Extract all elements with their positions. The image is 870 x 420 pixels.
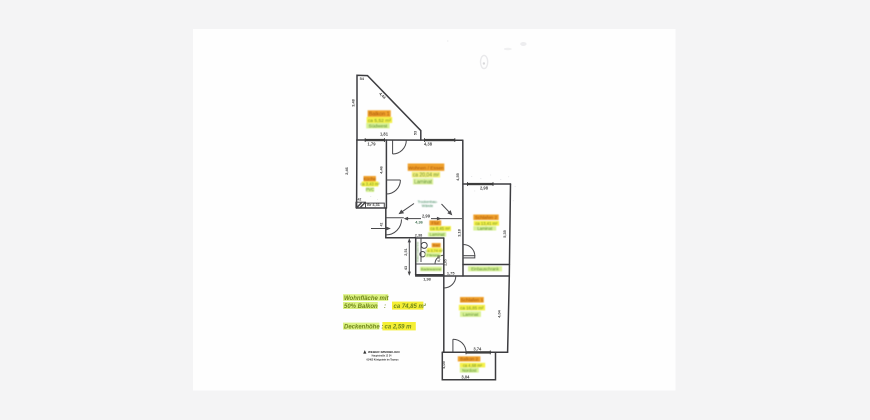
- svg-text:Laminat: Laminat: [430, 232, 446, 237]
- svg-text:Wohnen / Essen: Wohnen / Essen: [408, 165, 444, 171]
- svg-text:ca 74,85 m²: ca 74,85 m²: [394, 303, 427, 310]
- svg-text:42: 42: [358, 197, 362, 201]
- svg-text:4,04: 4,04: [496, 309, 501, 317]
- svg-text:3,74: 3,74: [473, 347, 482, 352]
- svg-text:ca 2,59 m: ca 2,59 m: [385, 325, 413, 331]
- svg-text:Balkon 1: Balkon 1: [369, 112, 390, 118]
- svg-text:43: 43: [404, 266, 408, 270]
- svg-text:61462 Königstein im Taunus: 61462 Königstein im Taunus: [366, 359, 399, 362]
- svg-text:Flur: Flur: [432, 221, 440, 226]
- svg-text:50% Balkon: 50% Balkon: [344, 304, 378, 310]
- svg-text:Schlafen 1: Schlafen 1: [461, 298, 484, 304]
- svg-text:2,46: 2,46: [344, 166, 349, 174]
- svg-text:2,51: 2,51: [404, 248, 408, 255]
- svg-text::: :: [384, 304, 386, 310]
- svg-text:Br 4,31: Br 4,31: [367, 203, 380, 207]
- svg-text:Bad: Bad: [433, 243, 440, 248]
- svg-text:Balkon 2: Balkon 2: [460, 357, 478, 362]
- svg-text:2,99: 2,99: [422, 214, 431, 219]
- svg-text:Laminat: Laminat: [414, 179, 432, 185]
- svg-text:Badewanne: Badewanne: [421, 267, 442, 272]
- svg-text:2,38: 2,38: [415, 234, 422, 238]
- svg-text:42: 42: [379, 223, 383, 227]
- svg-text:3,18: 3,18: [456, 228, 461, 236]
- svg-text:1,98: 1,98: [423, 277, 431, 282]
- svg-text:5,35: 5,35: [502, 229, 507, 237]
- svg-text:2,05: 2,05: [443, 259, 447, 266]
- svg-text:ca 3,43 m²: ca 3,43 m²: [360, 182, 380, 187]
- svg-text:4,46: 4,46: [379, 165, 384, 173]
- svg-text:Laminat: Laminat: [463, 312, 479, 317]
- svg-text:Wände: Wände: [422, 204, 433, 208]
- svg-text:1,81: 1,81: [380, 131, 389, 136]
- svg-text:Wohnfläche mit: Wohnfläche mit: [344, 296, 390, 302]
- svg-text:4,38: 4,38: [424, 142, 433, 147]
- svg-text:Deckenhöhe :: Deckenhöhe :: [344, 325, 383, 331]
- svg-text:0,45: 0,45: [437, 255, 441, 262]
- svg-text:Nordost: Nordost: [462, 368, 477, 373]
- svg-text:ca 16,85 m²: ca 16,85 m²: [460, 305, 484, 310]
- svg-text:Schlafen 2: Schlafen 2: [475, 215, 498, 220]
- svg-text:1,79: 1,79: [368, 142, 377, 147]
- svg-text:Waschmaschine: Waschmaschine: [415, 241, 419, 262]
- svg-text:ca 8,45 m²: ca 8,45 m²: [430, 226, 450, 231]
- svg-text:Hauptstraße 12 34: Hauptstraße 12 34: [372, 355, 393, 358]
- svg-text:WEBER IMMOBILIEN: WEBER IMMOBILIEN: [368, 350, 400, 354]
- svg-text:PVC: PVC: [366, 187, 374, 192]
- svg-text:ca 5,52 m²: ca 5,52 m²: [368, 118, 391, 124]
- svg-text:3,04: 3,04: [461, 374, 470, 379]
- svg-text:Laminat: Laminat: [477, 226, 493, 231]
- svg-text:2,98: 2,98: [480, 186, 489, 191]
- svg-text:Südwest: Südwest: [369, 124, 388, 130]
- svg-text:1,75: 1,75: [447, 270, 455, 275]
- svg-text:4,36: 4,36: [415, 220, 423, 225]
- svg-text:ca 20,04 m²: ca 20,04 m²: [413, 172, 440, 178]
- svg-text:4,05: 4,05: [441, 360, 446, 368]
- svg-text:4,55: 4,55: [455, 172, 460, 180]
- svg-text:3,48: 3,48: [350, 98, 355, 106]
- svg-text:ca 3,74 m²: ca 3,74 m²: [425, 249, 444, 253]
- svg-text:Einbauschrank: Einbauschrank: [471, 267, 500, 272]
